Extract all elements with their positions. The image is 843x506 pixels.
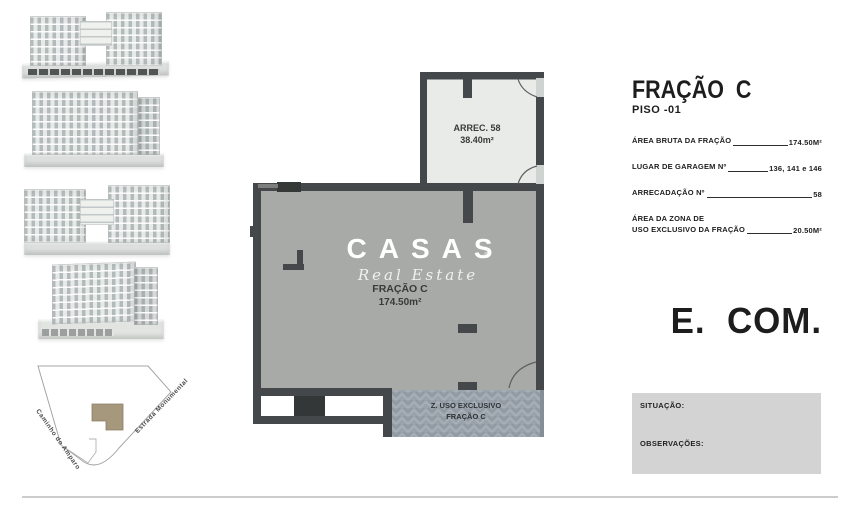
spec-label: ÁREA BRUTA DA FRAÇÃO bbox=[632, 136, 731, 147]
brand-watermark: CASAS® Real Estate bbox=[268, 233, 568, 284]
spec-value: 174.50M² bbox=[789, 138, 822, 147]
building-podium bbox=[24, 241, 170, 255]
storage-room-area: 38.40m² bbox=[417, 134, 537, 146]
building-render-3 bbox=[24, 183, 170, 256]
exclusive-zone-label: Z. USO EXCLUSIVO FRAÇÃO C bbox=[386, 401, 546, 422]
building-tower bbox=[52, 262, 136, 325]
fraction-title: FRAÇÃO C bbox=[632, 76, 751, 105]
building-side-facade bbox=[138, 97, 160, 155]
building-tower bbox=[106, 12, 162, 66]
situacao-label: SITUAÇÃO: bbox=[640, 401, 821, 410]
exclusive-zone-line1: Z. USO EXCLUSIVO bbox=[386, 401, 546, 412]
spec-row-zona-exclusiva: ÁREA DA ZONA DE USO EXCLUSIVO DA FRAÇÃO … bbox=[632, 214, 822, 236]
building-colonnade bbox=[42, 329, 114, 336]
door-leaf bbox=[277, 182, 301, 192]
site-plan: Caminho do Amparo Estrada Monumental bbox=[18, 356, 196, 480]
dotted-line bbox=[747, 233, 792, 234]
spec-row-arrecadacao: ARRECADAÇÃO Nº 58 bbox=[632, 188, 822, 199]
dotted-line bbox=[728, 171, 768, 172]
notes-box: SITUAÇÃO: OBSERVAÇÕES: bbox=[632, 393, 821, 474]
footer-divider bbox=[22, 496, 838, 498]
building-render-2 bbox=[24, 89, 164, 169]
spec-row-area-bruta: ÁREA BRUTA DA FRAÇÃO 174.50M² bbox=[632, 136, 822, 147]
building-bridge bbox=[80, 21, 112, 46]
spec-value: 20.50M² bbox=[793, 226, 822, 235]
spec-value: 58 bbox=[813, 190, 822, 199]
building-tower bbox=[32, 91, 138, 155]
dotted-line bbox=[707, 197, 813, 198]
building-storefront-band bbox=[28, 69, 160, 75]
building-tower bbox=[108, 185, 170, 243]
building-render-1 bbox=[22, 12, 169, 82]
building-podium bbox=[24, 153, 164, 167]
dotted-line bbox=[733, 145, 787, 146]
pillar bbox=[294, 396, 325, 416]
spec-rows: ÁREA BRUTA DA FRAÇÃO 174.50M² LUGAR DE G… bbox=[632, 136, 822, 250]
registered-mark: ® bbox=[484, 251, 490, 260]
storage-room-name: ARREC. 58 bbox=[417, 122, 537, 134]
spec-row-garagem: LUGAR DE GARAGEM Nº 136, 141 e 146 bbox=[632, 162, 822, 173]
brand-logo-subtitle: Real Estate bbox=[268, 266, 568, 284]
brand-logo-text: CASAS bbox=[347, 233, 505, 264]
floor-plan: ARREC. 58 38.40m² CASAS® Real Estate FRA… bbox=[250, 70, 546, 438]
building-bridge bbox=[80, 199, 114, 225]
building-side-facade bbox=[134, 267, 158, 325]
spec-label-line1: ÁREA DA ZONA DE bbox=[632, 214, 745, 225]
building-render-4 bbox=[38, 263, 164, 349]
exclusive-zone-line2: FRAÇÃO C bbox=[386, 412, 546, 423]
info-panel: FRAÇÃO C PISO -01 ÁREA BRUTA DA FRAÇÃO 1… bbox=[632, 0, 822, 506]
building-tower bbox=[24, 189, 86, 243]
big-label-e-com: E. COM. bbox=[638, 300, 822, 342]
door-threshold bbox=[258, 184, 278, 188]
fraction-label: FRAÇÃO C 174.50m² bbox=[320, 283, 480, 308]
property-sheet-page: Caminho do Amparo Estrada Monumental bbox=[0, 0, 843, 506]
spec-label-line2: USO EXCLUSIVO DA FRAÇÃO bbox=[632, 225, 745, 236]
building-tower bbox=[30, 16, 86, 66]
spec-label: ARRECADAÇÃO Nº bbox=[632, 188, 705, 199]
spec-label: ÁREA DA ZONA DE USO EXCLUSIVO DA FRAÇÃO bbox=[632, 214, 745, 236]
spec-label: LUGAR DE GARAGEM Nº bbox=[632, 162, 726, 173]
fraction-area: 174.50m² bbox=[320, 297, 480, 308]
storage-room-label: ARREC. 58 38.40m² bbox=[417, 122, 537, 146]
fraction-name: FRAÇÃO C bbox=[320, 283, 480, 295]
spec-value: 136, 141 e 146 bbox=[769, 164, 822, 173]
floor-subtitle: PISO -01 bbox=[632, 104, 681, 116]
observacoes-label: OBSERVAÇÕES: bbox=[640, 439, 821, 448]
